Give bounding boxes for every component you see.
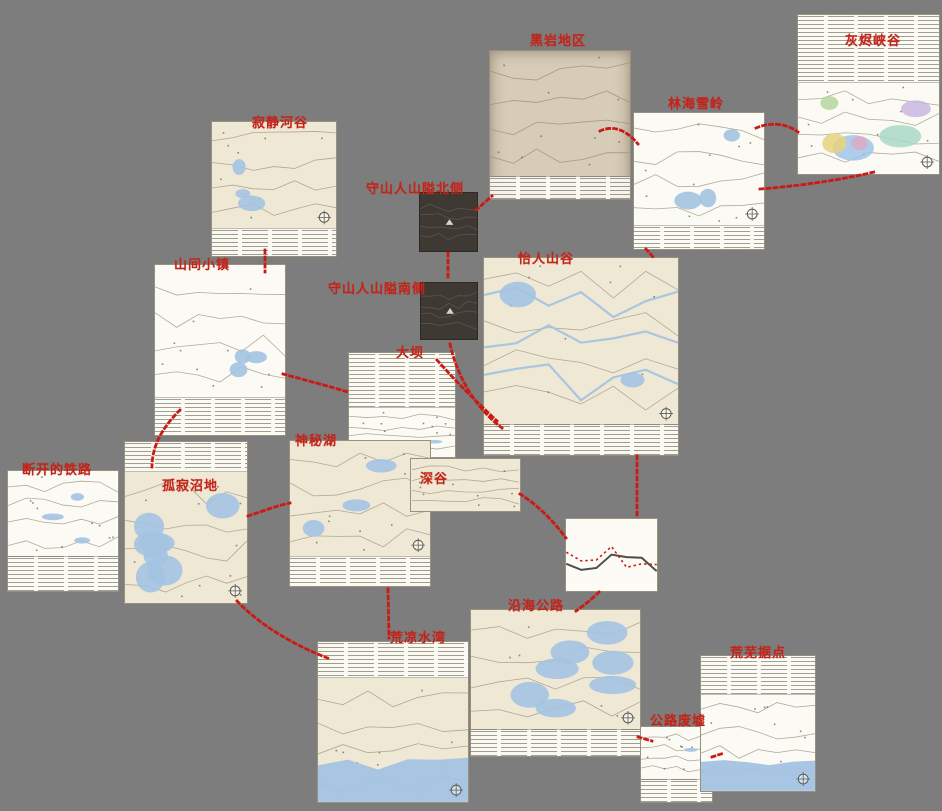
map-mark [780, 761, 782, 763]
map-broken-railroad [7, 470, 119, 592]
zone-shape [820, 96, 838, 110]
map-legend-text-block [125, 442, 247, 472]
map-mark [711, 722, 713, 724]
zone-shape [879, 125, 921, 147]
map-mark [432, 426, 434, 428]
map-mark [162, 363, 164, 365]
map-mark [449, 434, 451, 436]
map-mark [363, 423, 365, 425]
map-mark [198, 503, 200, 505]
map-mark [754, 708, 756, 710]
region-label-the-dam: 大坝 [396, 342, 424, 361]
map-mark [642, 374, 644, 376]
map-mark [498, 152, 500, 154]
map-legend-text-block [484, 424, 678, 455]
map-mark [620, 266, 622, 268]
lake-shape [500, 282, 536, 308]
map-mark [511, 493, 513, 495]
compass-icon [411, 538, 425, 552]
map-mark [589, 164, 591, 166]
lake-shape [511, 682, 549, 708]
map-mark [423, 423, 425, 425]
map-mark [379, 752, 381, 754]
contour-line [212, 181, 336, 190]
lake-shape [136, 562, 165, 593]
map-mark [32, 502, 34, 504]
map-blackrock [489, 50, 631, 200]
contour-line [349, 434, 455, 438]
map-mark [800, 730, 802, 732]
region-label-broken-railroad: 断开的铁路 [22, 459, 92, 478]
region-label-pleasant-valley: 怡人山谷 [518, 248, 574, 267]
lake-shape [230, 362, 248, 377]
map-legend-text-block [701, 656, 815, 695]
map-legend-text-block [290, 556, 430, 586]
map-desolation-point [700, 655, 816, 792]
contour-line [490, 63, 630, 80]
map-mark [174, 343, 176, 345]
rail-line [566, 555, 656, 572]
lake-shape [684, 748, 697, 752]
map-mark [109, 537, 111, 539]
map-mark [264, 138, 266, 140]
lake-shape [699, 189, 716, 208]
contour-line [212, 158, 336, 171]
map-mark [237, 152, 239, 154]
map-mark [598, 57, 600, 59]
map-mark [383, 412, 385, 414]
map-mark [445, 423, 447, 425]
region-label-ash-canyon: 灰烬峡谷 [845, 30, 901, 49]
map-mark [404, 473, 406, 475]
map-mark [683, 768, 685, 770]
region-label-forlorn-muskeg: 孤寂沼地 [162, 475, 218, 494]
map-mark [223, 132, 225, 134]
world-map-collage: 寂静河谷 黑岩地区 林海雪岭 灰烬峡谷 守山人山隘北侧 守山人山隘南侧 怡人山谷… [0, 0, 942, 811]
contour-line [490, 149, 630, 163]
map-mark [199, 585, 201, 587]
map-mark [328, 521, 330, 523]
map-keepers-pass-south [420, 282, 478, 340]
contour-line [155, 287, 285, 295]
lake-shape [592, 651, 633, 675]
lake-shape [589, 676, 636, 694]
lake-shape [342, 499, 370, 511]
map-hushed-river-valley [211, 121, 337, 257]
region-label-coastal-highway: 沿海公路 [508, 595, 564, 614]
map-mark [764, 707, 766, 709]
map-mark [900, 111, 902, 113]
contour-line [349, 426, 455, 431]
map-decoration [420, 193, 477, 251]
map-mark [852, 99, 854, 101]
map-mark [645, 170, 647, 172]
map-mark [336, 750, 338, 752]
map-mark [666, 737, 668, 739]
map-mark [316, 542, 318, 544]
map-mark [436, 432, 438, 434]
map-mark [196, 369, 198, 371]
zone-shape [822, 133, 846, 153]
map-mark [250, 217, 252, 219]
contour-line [634, 173, 764, 187]
zone-shape [851, 136, 868, 150]
lake-shape [621, 373, 645, 388]
map-mark [342, 752, 344, 754]
contour-line [412, 498, 519, 505]
contour-line [155, 335, 285, 356]
map-keepers-pass-north [419, 192, 478, 252]
map-mark [384, 430, 386, 432]
map-mark [180, 350, 182, 352]
region-label-bleak-inlet: 荒凉水湾 [390, 627, 446, 646]
map-legend-text-block [471, 729, 640, 756]
map-mark [811, 145, 813, 147]
map-pleasant-valley [483, 257, 679, 456]
map-mark [261, 386, 263, 388]
map-legend-text-block [490, 176, 630, 199]
lake-shape [232, 159, 245, 175]
compass-icon [745, 207, 759, 221]
map-mark [647, 757, 649, 759]
contour-line [318, 691, 468, 707]
map-mark [436, 416, 438, 418]
map-decoration [566, 519, 657, 591]
map-mark [519, 655, 521, 657]
zone-shape [901, 100, 931, 117]
region-label-blackrock: 黑岩地区 [530, 30, 586, 49]
connector-line [283, 374, 348, 392]
sea-shape [701, 760, 815, 791]
map-coastal-highway [470, 609, 641, 757]
map-mark [363, 549, 365, 551]
map-mark [514, 506, 516, 508]
contour-line [490, 120, 630, 135]
map-mark [321, 138, 323, 140]
contour-line [701, 727, 815, 739]
map-mark [618, 141, 620, 143]
compass-icon [659, 407, 673, 421]
map-mark [268, 374, 270, 376]
region-label-the-ravine: 深谷 [420, 468, 448, 487]
map-mark [329, 515, 331, 517]
contour-line [701, 746, 815, 759]
sea-shape [318, 758, 468, 802]
lake-shape [366, 459, 397, 472]
map-mark [610, 282, 612, 284]
compass-icon [621, 711, 635, 725]
lake-shape [238, 196, 265, 212]
map-mark [30, 500, 32, 502]
map-mark [99, 525, 101, 527]
connector-line [388, 589, 389, 638]
map-mark [618, 99, 620, 101]
map-mark [227, 145, 229, 147]
map-mark [691, 747, 693, 749]
map-mark [61, 546, 63, 548]
map-mark [528, 277, 530, 279]
lake-shape [134, 532, 170, 557]
map-legend-text-block [8, 556, 118, 591]
map-mark [680, 746, 682, 748]
compass-icon [317, 210, 331, 224]
map-mark [736, 217, 738, 219]
map-mark [227, 350, 229, 352]
map-mark [213, 385, 215, 387]
map-forlorn-muskeg [124, 441, 248, 604]
lake-shape [303, 520, 325, 537]
region-label-keepers-pass-north: 守山人山隘北侧 [366, 178, 464, 197]
map-mark [509, 657, 511, 659]
map-mark [594, 137, 596, 139]
map-mark [903, 87, 905, 89]
route-trace [566, 547, 656, 568]
map-mark [669, 739, 671, 741]
contour-line [349, 414, 455, 420]
contour-line [8, 498, 118, 507]
contour-line [490, 91, 630, 105]
map-mark [681, 746, 683, 748]
contour-line [290, 453, 430, 467]
map-mark [548, 92, 550, 94]
map-mark [250, 288, 252, 290]
region-label-mystery-lake: 神秘湖 [295, 430, 337, 449]
map-legend-text-block [318, 642, 468, 678]
map-mark [689, 216, 691, 218]
map-mark [646, 195, 648, 197]
map-mark [808, 124, 810, 126]
map-mark [528, 626, 530, 628]
region-label-desolation-point: 荒芜据点 [730, 642, 786, 661]
map-mark [181, 596, 183, 598]
map-mark [548, 391, 550, 393]
map-mark [403, 453, 405, 455]
region-label-crumbling-highway: 公路废墟 [650, 710, 706, 729]
map-mark [719, 220, 721, 222]
map-mark [827, 91, 829, 93]
compass-icon [920, 155, 934, 169]
lake-shape [724, 129, 740, 141]
region-label-hushed-river-valley: 寂静河谷 [252, 112, 308, 131]
lake-shape [235, 349, 251, 364]
map-mark [391, 524, 393, 526]
contour-line [212, 204, 336, 216]
map-mark [698, 124, 700, 126]
map-mark [565, 338, 567, 340]
map-mark [220, 179, 222, 181]
map-mark [540, 135, 542, 137]
contour-line [8, 537, 118, 549]
lake-shape [206, 493, 239, 518]
region-label-mountain-town: 山间小镇 [174, 254, 230, 273]
map-mark [693, 184, 695, 186]
river-line [484, 325, 678, 347]
map-mark [452, 484, 454, 486]
lake-shape [71, 493, 84, 501]
contour-line [212, 131, 336, 140]
map-mark [738, 146, 740, 148]
map-mark [37, 508, 39, 510]
map-mark [193, 321, 195, 323]
contour-line [318, 723, 468, 734]
map-mark [145, 500, 147, 502]
contour-line [412, 488, 519, 493]
map-mark [709, 155, 711, 157]
contour-line [318, 744, 468, 754]
map-legend-text-block [212, 228, 336, 256]
map-mark [804, 737, 806, 739]
map-mark [381, 423, 383, 425]
map-mark [617, 715, 619, 717]
map-mark [451, 742, 453, 744]
contour-line [155, 367, 285, 382]
map-mark [601, 705, 603, 707]
map-mark [767, 706, 769, 708]
contour-line [484, 386, 678, 411]
contour-line [634, 124, 764, 140]
lake-shape [74, 537, 90, 543]
map-mark [236, 545, 238, 547]
map-mark [365, 457, 367, 459]
map-bleak-inlet [317, 641, 469, 803]
contour-line [634, 152, 764, 165]
map-mark [134, 561, 136, 563]
map-mark [377, 764, 379, 766]
map-legend-text-block [634, 225, 764, 249]
contour-line [155, 313, 285, 328]
contour-line [290, 478, 430, 496]
map-mark [521, 157, 523, 159]
map-far-range-branch-line [565, 518, 658, 592]
map-mark [240, 594, 242, 596]
region-label-timberwolf-mountain: 林海雪岭 [668, 93, 724, 112]
lake-shape [42, 514, 64, 521]
map-legend-text-block [349, 353, 455, 408]
contour-line [8, 481, 118, 492]
map-mark [112, 537, 114, 539]
map-legend-text-block [155, 397, 285, 435]
lake-shape [535, 658, 578, 679]
map-mark [664, 768, 666, 770]
map-mark [477, 495, 479, 497]
map-mark [423, 494, 425, 496]
lake-shape [674, 192, 702, 210]
map-mountain-town [154, 264, 286, 436]
map-mark [240, 503, 242, 505]
map-mark [36, 549, 38, 551]
map-timberwolf-mountain [633, 112, 765, 250]
map-mark [877, 134, 879, 136]
map-mark [504, 470, 506, 472]
connector-line [248, 503, 290, 516]
map-mark [421, 690, 423, 692]
map-decoration [421, 283, 477, 339]
map-mark [478, 504, 480, 506]
river-line [484, 364, 678, 400]
contour-line [701, 703, 815, 713]
map-mark [750, 142, 752, 144]
lake-shape [587, 621, 628, 645]
map-mark [927, 140, 929, 142]
map-mark [503, 65, 505, 67]
connector-line [520, 494, 566, 538]
region-label-keepers-pass-south: 守山人山隘南侧 [328, 278, 426, 297]
map-mark [774, 724, 776, 726]
map-mark [91, 523, 93, 525]
map-mark [230, 575, 232, 577]
map-mark [359, 530, 361, 532]
